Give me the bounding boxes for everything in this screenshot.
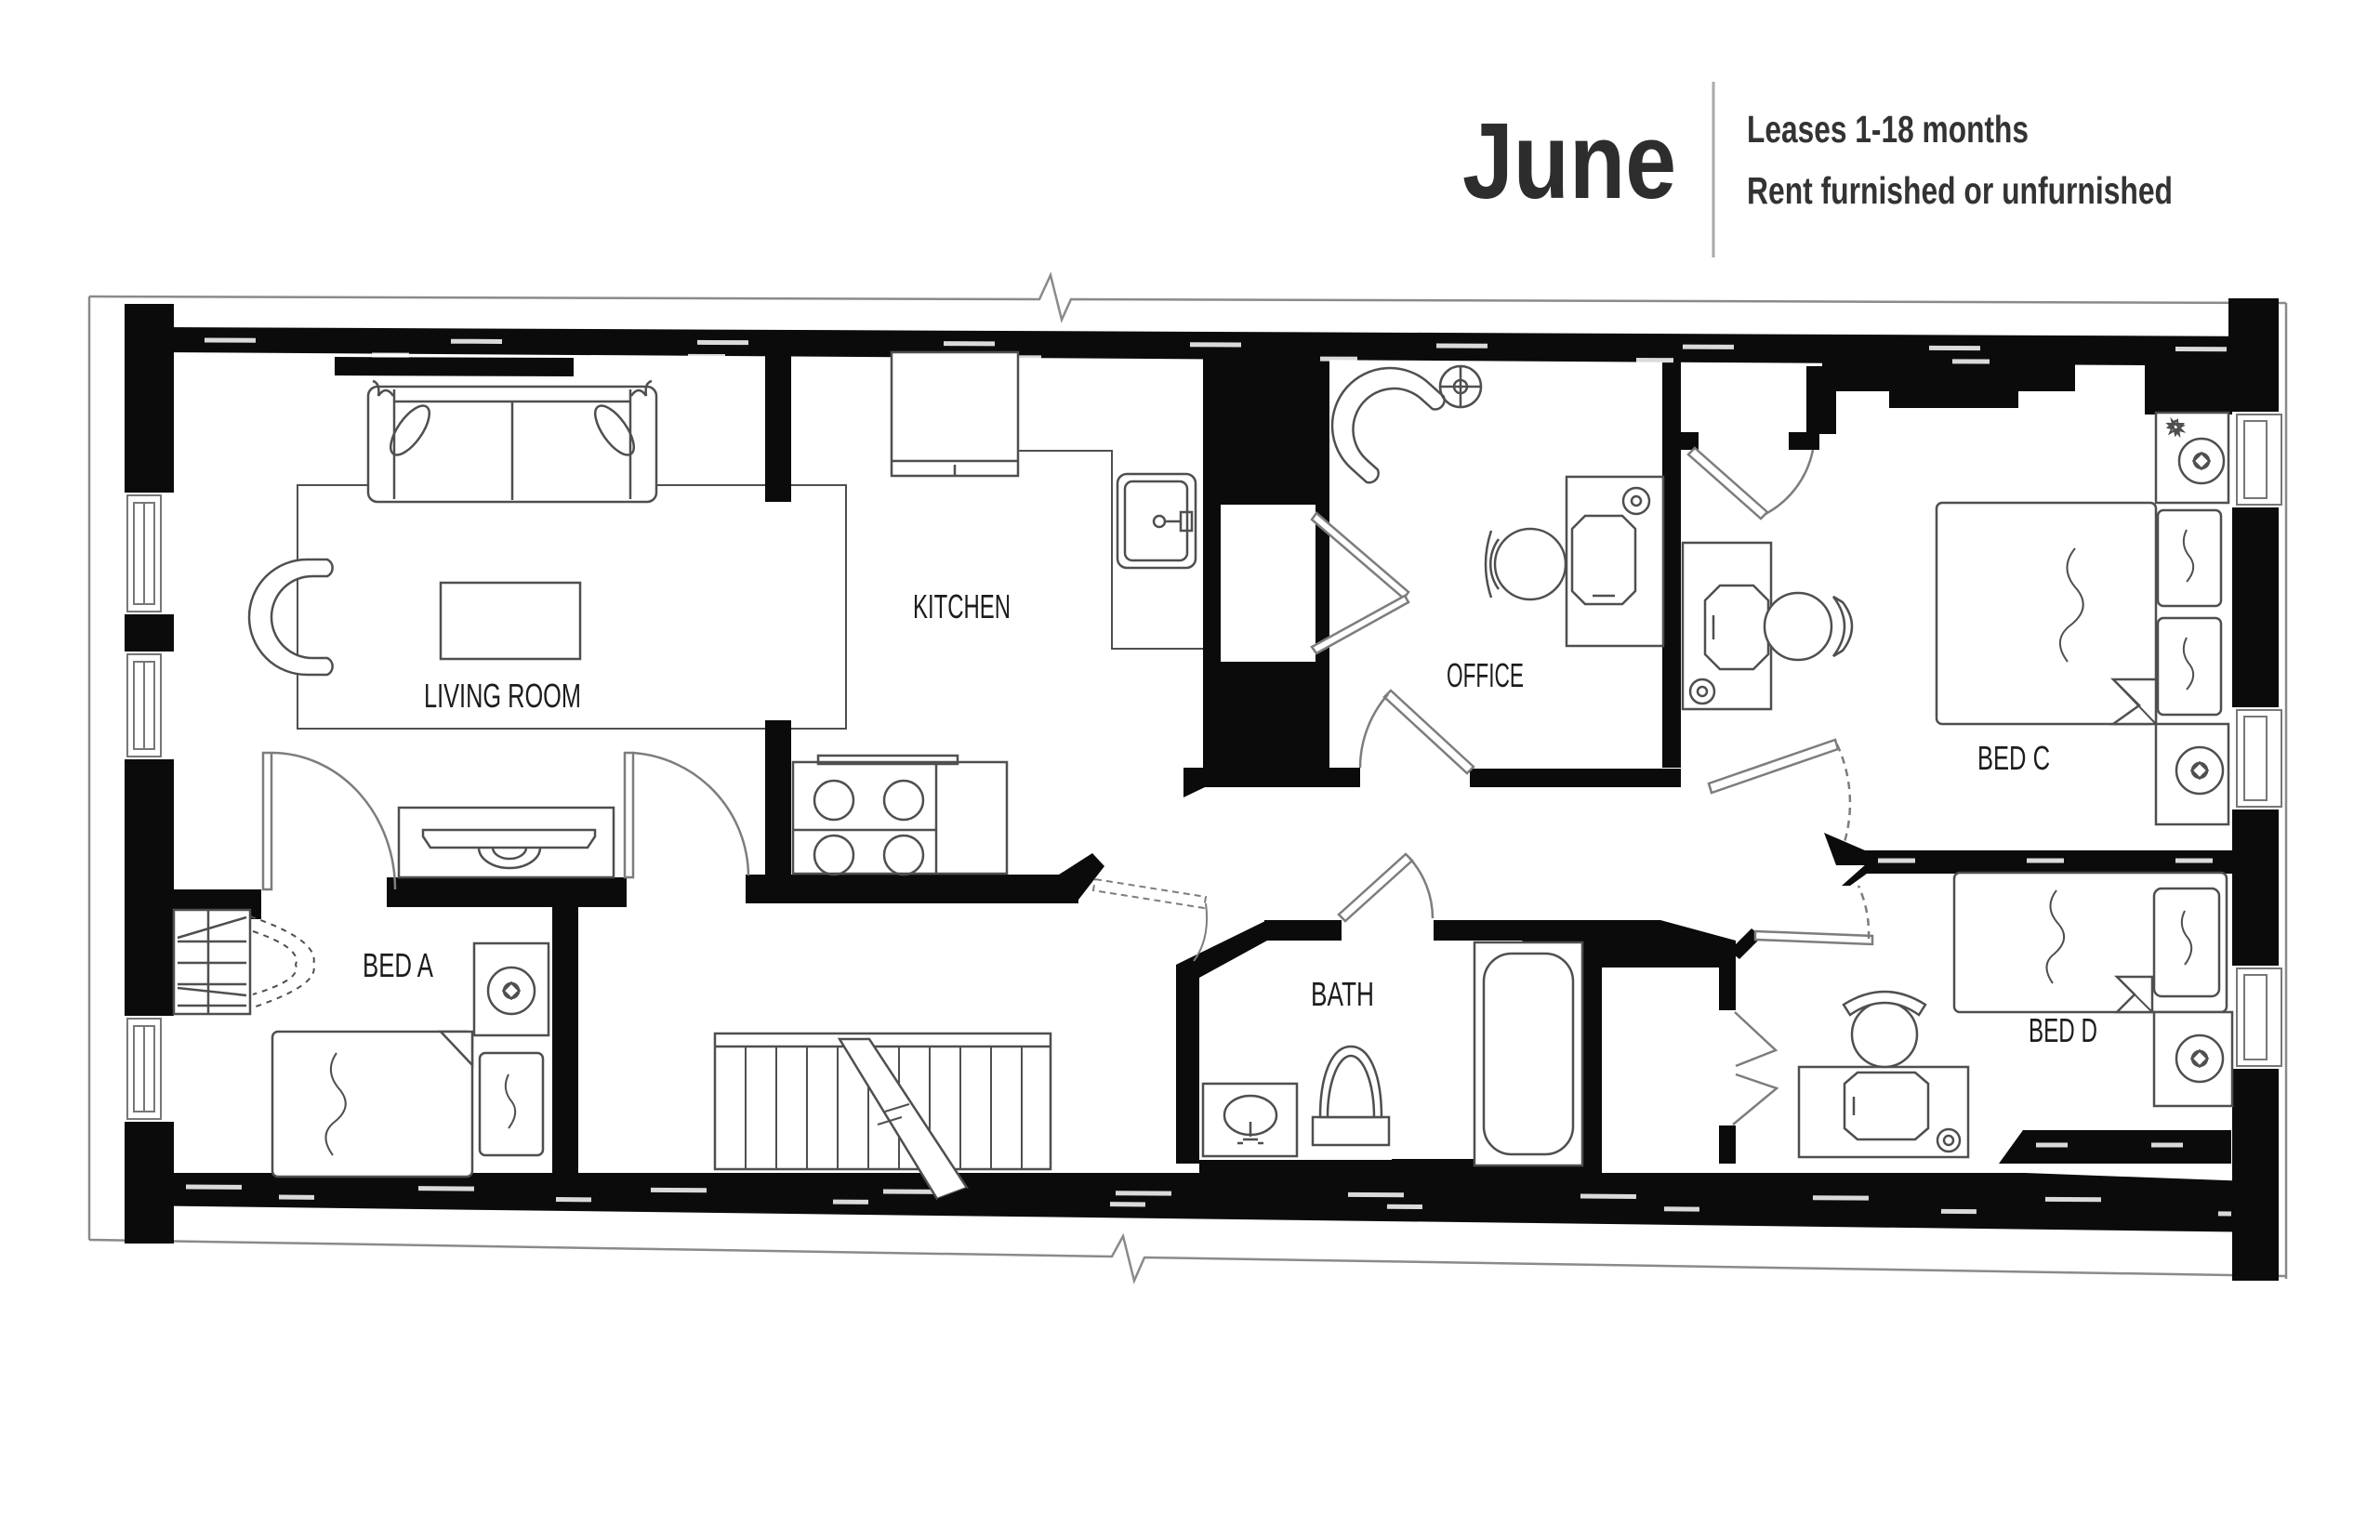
svg-text:BED D: BED D [2029, 1011, 2097, 1049]
svg-text:BED C: BED C [1977, 739, 2050, 777]
svg-text:June: June [1462, 100, 1676, 221]
svg-text:KITCHEN: KITCHEN [913, 587, 1011, 625]
svg-text:BED A: BED A [363, 946, 433, 984]
svg-text:LIVING ROOM: LIVING ROOM [424, 677, 581, 715]
svg-text:Leases 1-18 months: Leases 1-18 months [1747, 108, 2029, 151]
svg-text:Rent furnished or unfurnished: Rent furnished or unfurnished [1747, 169, 2173, 212]
svg-text:OFFICE: OFFICE [1447, 656, 1524, 694]
svg-text:BATH: BATH [1311, 975, 1374, 1013]
